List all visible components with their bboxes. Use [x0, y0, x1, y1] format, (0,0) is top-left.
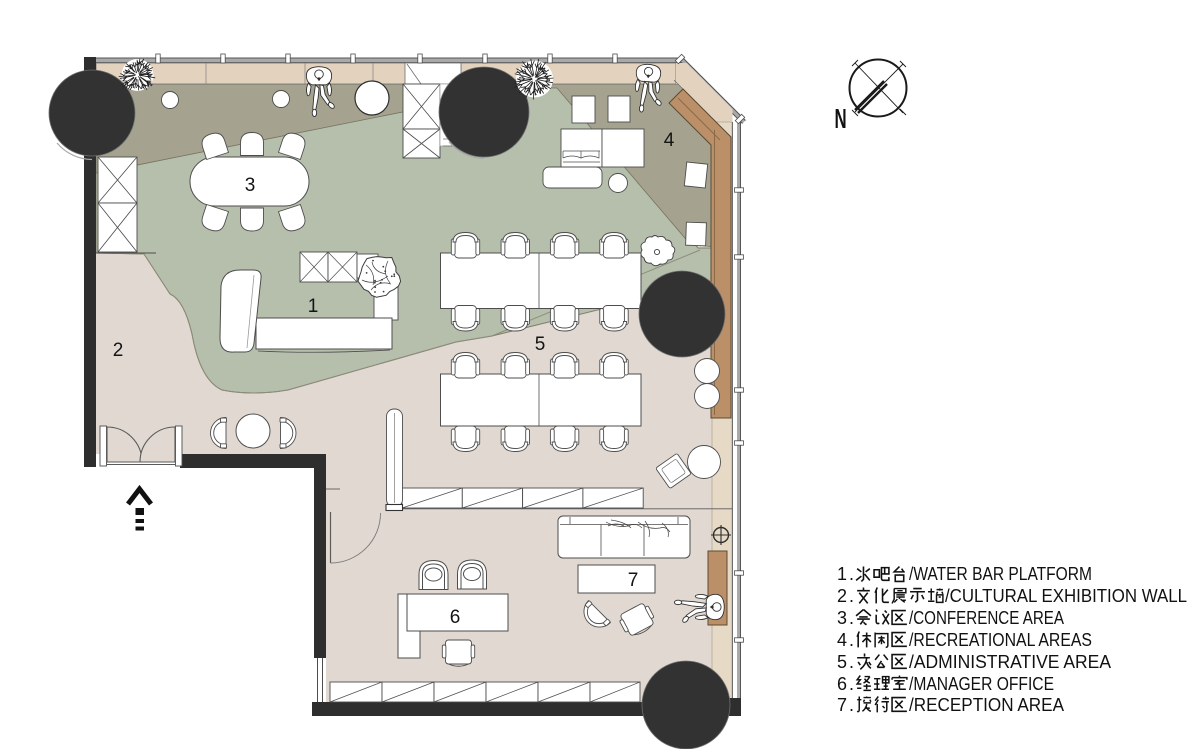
svg-text:6.: 6. — [837, 674, 854, 694]
svg-text:/CULTURAL EXHIBITION WALL: /CULTURAL EXHIBITION WALL — [945, 586, 1187, 606]
svg-text:/MANAGER OFFICE: /MANAGER OFFICE — [909, 674, 1054, 694]
svg-text:7: 7 — [628, 570, 639, 591]
svg-text:N: N — [835, 103, 847, 135]
svg-text:1: 1 — [308, 296, 319, 317]
svg-text:2: 2 — [113, 340, 124, 361]
svg-text:7.: 7. — [837, 695, 854, 715]
svg-text:/CONFERENCE AREA: /CONFERENCE AREA — [909, 608, 1064, 628]
svg-text:/RECREATIONAL AREAS: /RECREATIONAL AREAS — [909, 630, 1092, 650]
svg-text:/WATER BAR PLATFORM: /WATER BAR PLATFORM — [909, 564, 1092, 584]
svg-text:5.: 5. — [837, 652, 854, 672]
svg-text:6: 6 — [450, 607, 461, 628]
svg-text:4.: 4. — [837, 630, 854, 650]
svg-text:/RECEPTION AREA: /RECEPTION AREA — [909, 695, 1064, 715]
svg-text:2.: 2. — [837, 586, 854, 606]
svg-text:4: 4 — [664, 130, 675, 151]
svg-text:3.: 3. — [837, 608, 854, 628]
svg-text:3: 3 — [245, 175, 256, 196]
svg-text:1.: 1. — [837, 564, 854, 584]
svg-text:/ADMINISTRATIVE AREA: /ADMINISTRATIVE AREA — [909, 652, 1111, 672]
svg-text:5: 5 — [535, 334, 546, 355]
